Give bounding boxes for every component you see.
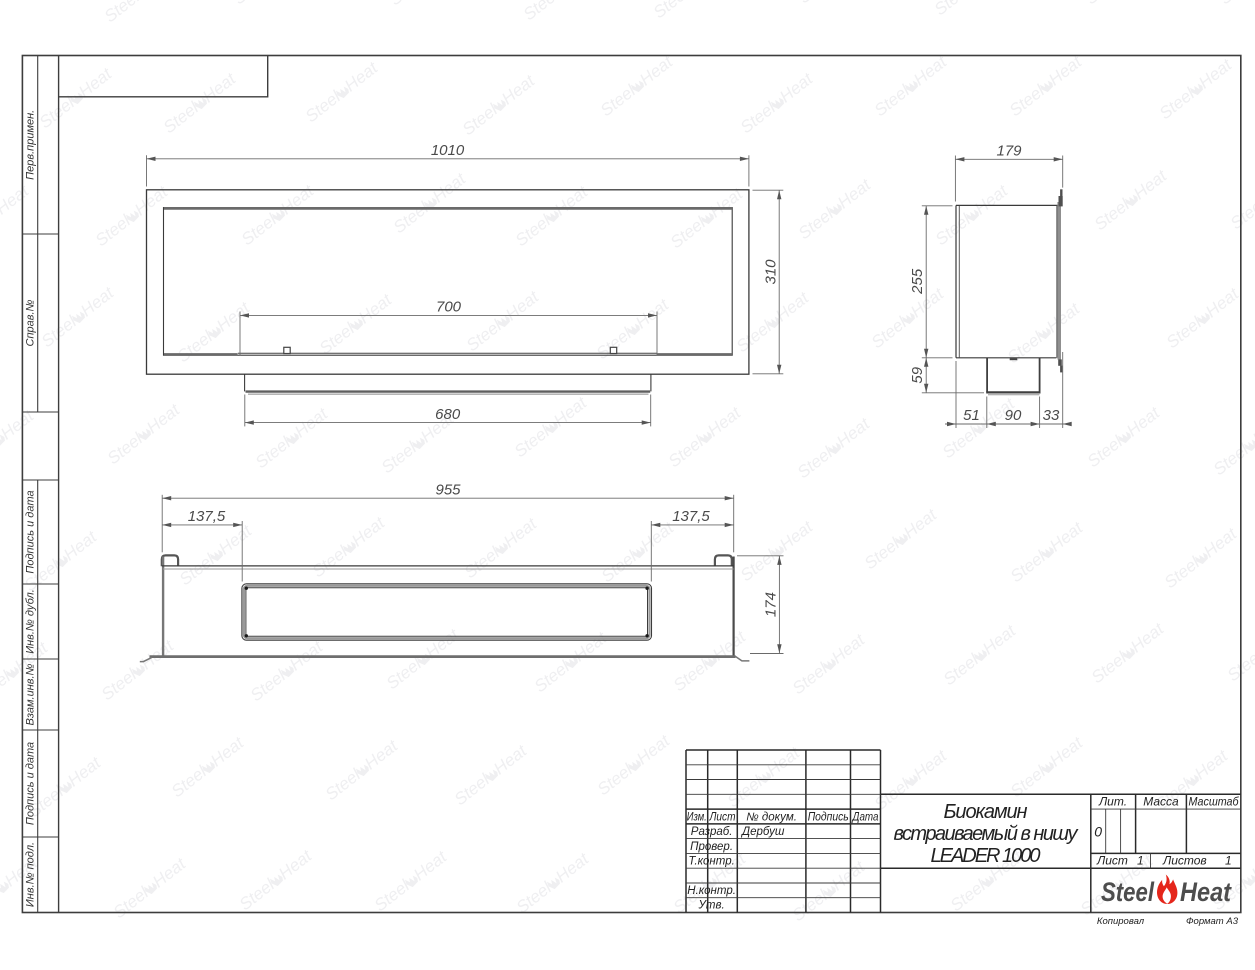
svg-text:Изм.: Изм. [687,811,707,823]
svg-text:Дата: Дата [851,811,879,823]
svg-text:Справ.№: Справ.№ [25,299,37,346]
svg-text:700: 700 [436,299,462,316]
svg-text:Лит.: Лит. [1098,794,1127,808]
svg-text:955: 955 [435,481,461,498]
svg-text:174: 174 [763,592,780,617]
svg-text:137,5: 137,5 [672,508,710,525]
svg-text:59: 59 [909,366,926,383]
svg-text:Дербуш: Дербуш [740,826,785,838]
svg-text:0: 0 [1094,824,1102,840]
svg-text:680: 680 [435,406,461,423]
svg-text:Лист: Лист [709,811,736,823]
svg-text:Т.контр.: Т.контр. [688,856,734,868]
svg-text:1: 1 [1225,854,1232,868]
svg-text:33: 33 [1043,407,1060,424]
svg-text:Подпись и дата: Подпись и дата [25,490,37,573]
svg-text:Инв.№ дубл.: Инв.№ дубл. [25,589,37,654]
svg-text:Подпись: Подпись [808,811,849,823]
svg-text:Лист: Лист [1096,854,1128,868]
svg-text:Провер.: Провер. [690,841,733,853]
svg-text:Масштаб: Масштаб [1189,794,1240,808]
svg-text:Взам.инв.№: Взам.инв.№ [25,663,37,725]
svg-text:1: 1 [1137,854,1144,868]
svg-text:Биокамин: Биокамин [944,801,1028,823]
svg-text:Копировал: Копировал [1097,916,1145,927]
svg-text:Н.контр.: Н.контр. [687,885,736,897]
svg-text:90: 90 [1005,407,1022,424]
svg-text:Формат А3: Формат А3 [1186,916,1239,927]
svg-text:Steel: Steel [1101,877,1154,907]
svg-text:255: 255 [909,268,926,295]
svg-text:встраиваемый в нишу: встраиваемый в нишу [894,823,1079,845]
svg-text:1010: 1010 [431,142,465,159]
svg-text:Листов: Листов [1162,854,1207,868]
svg-text:51: 51 [963,407,980,424]
svg-text:Перв.примен.: Перв.примен. [25,110,37,180]
svg-text:№ докум.: № докум. [746,811,797,823]
svg-text:Подпись и дата: Подпись и дата [25,742,37,825]
svg-text:Разраб.: Разраб. [691,826,733,838]
svg-text:Heat: Heat [1180,877,1232,907]
svg-text:LEADER 1000: LEADER 1000 [931,845,1041,867]
svg-text:Утв.: Утв. [698,900,725,912]
svg-text:Инв.№ подл.: Инв.№ подл. [25,842,37,907]
svg-text:310: 310 [762,259,779,285]
svg-text:179: 179 [996,143,1022,160]
svg-text:137,5: 137,5 [188,508,226,525]
svg-text:Масса: Масса [1143,794,1179,808]
